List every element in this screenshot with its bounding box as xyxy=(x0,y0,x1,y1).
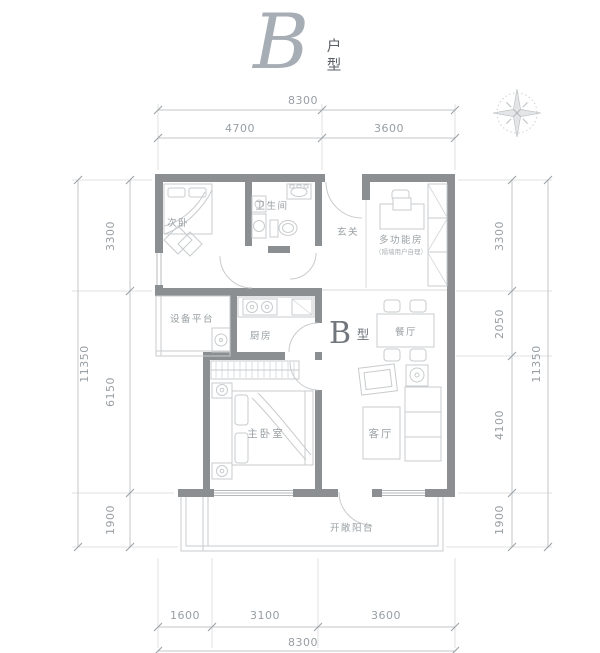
dim-bottom-total: 8300 xyxy=(288,636,318,649)
dim-top-seg-1: 4700 xyxy=(225,122,255,135)
dim-right-seg-2: 2050 xyxy=(493,309,506,339)
title-char-top: 户 xyxy=(327,38,342,55)
dimension-top: 8300 4700 3600 xyxy=(154,94,459,142)
dim-bottom-seg-1: 1600 xyxy=(170,609,200,622)
room-label-multifunction: 多功能房 xyxy=(379,234,423,246)
dimension-left: 11350 3300 6150 1900 xyxy=(74,176,134,551)
dimension-right: 3300 2050 4100 1900 11350 xyxy=(493,176,552,551)
dim-right-seg-1: 3300 xyxy=(493,221,506,251)
room-secondary-bedroom: 次卧 xyxy=(164,184,212,256)
dimension-bottom: 1600 3100 3600 8300 xyxy=(154,609,459,653)
plan-type-letter: B xyxy=(329,316,351,351)
page-title: B 户 型 xyxy=(251,0,341,86)
compass-rose-icon xyxy=(493,89,541,137)
title-char-bottom: 型 xyxy=(327,57,342,74)
dim-left-seg-2: 6150 xyxy=(104,377,117,407)
room-label-secondary-bedroom: 次卧 xyxy=(167,217,189,229)
room-master-bedroom: 主卧室 xyxy=(211,361,313,479)
title-letter: B xyxy=(251,0,309,86)
room-label-bathroom: 卫生间 xyxy=(255,200,288,212)
dim-right-seg-3: 4100 xyxy=(493,410,506,440)
room-label-balcony: 开敞阳台 xyxy=(330,522,374,534)
room-living: 客厅 xyxy=(358,364,441,461)
floorplan-page: B 户 型 8300 xyxy=(0,0,600,653)
room-balcony: 开敞阳台 xyxy=(181,497,443,551)
room-dining: 餐厅 xyxy=(377,300,434,361)
plan-type-suffix: 型 xyxy=(357,327,370,342)
dim-right-total: 11350 xyxy=(530,345,543,383)
room-kitchen: 厨房 xyxy=(238,297,314,342)
room-bathroom: 卫生间 xyxy=(252,184,311,238)
dim-left-seg-1: 3300 xyxy=(104,221,117,251)
dim-bottom-seg-3: 3600 xyxy=(371,609,401,622)
dim-top-seg-2: 3600 xyxy=(374,122,404,135)
dim-top-total: 8300 xyxy=(288,94,318,107)
dim-bottom-seg-2: 3100 xyxy=(250,609,280,622)
dim-left-seg-3: 1900 xyxy=(104,505,117,535)
dim-left-total: 11350 xyxy=(78,345,91,383)
room-label-equipment-platform: 设备平台 xyxy=(170,313,214,325)
room-label-living: 客厅 xyxy=(369,427,394,440)
room-equipment-platform: 设备平台 xyxy=(156,296,230,356)
room-label-master-bedroom: 主卧室 xyxy=(247,427,285,440)
room-entry: 玄关 xyxy=(337,226,359,238)
room-note-multifunction: （隔墙用户自理） xyxy=(375,247,427,256)
extension-lines xyxy=(72,104,552,648)
room-label-dining: 餐厅 xyxy=(395,326,417,338)
floorplan-canvas: B 户 型 8300 xyxy=(0,0,600,653)
room-label-kitchen: 厨房 xyxy=(250,330,272,342)
dim-right-seg-4: 1900 xyxy=(493,505,506,535)
plan-type-label: B 型 xyxy=(329,316,369,351)
room-multifunction: 多功能房 （隔墙用户自理） xyxy=(375,184,447,286)
room-label-entry: 玄关 xyxy=(337,226,359,238)
